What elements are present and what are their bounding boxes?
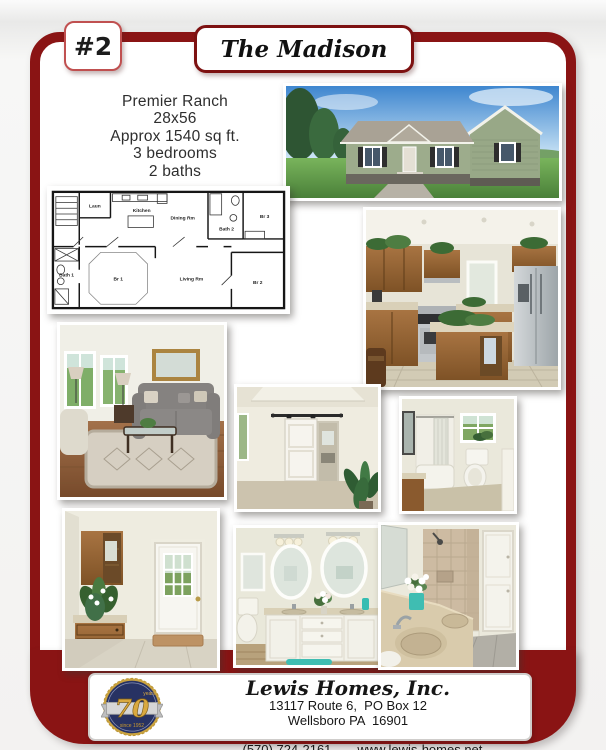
logo-number: 70 xyxy=(115,694,149,723)
hall-bathroom-photo xyxy=(399,396,517,514)
master-vanity-photo xyxy=(233,525,382,668)
room-label-bath2: Bath 2 xyxy=(219,226,234,232)
room-label-bath1: Bath 1 xyxy=(59,272,74,278)
address-line-1: 13117 Route 6, PO Box 12 xyxy=(176,699,520,714)
exterior-photo-image xyxy=(286,86,559,198)
model-number: #2 xyxy=(74,32,112,61)
address-line-2: Wellsboro PA 16901 xyxy=(176,714,520,729)
spec-line: Approx 1540 sq ft. xyxy=(70,128,280,145)
floor-plan-image: Laun Kitchen Dining Rm Bath 2 Br 3 Bath … xyxy=(50,189,287,311)
living-room-photo-image xyxy=(60,325,224,497)
toilet xyxy=(464,449,488,490)
room-label-living: Living Rm xyxy=(180,276,204,282)
spec-line: 2 baths xyxy=(70,163,280,180)
room-label-kitchen: Kitchen xyxy=(133,208,151,214)
armchair xyxy=(60,409,88,455)
entry-door xyxy=(151,539,205,637)
entry-photo xyxy=(62,508,220,671)
mirror-edge xyxy=(381,525,407,589)
logo-caption-top: years xyxy=(143,691,156,697)
footer-text: Lewis Homes, Inc. 13117 Route 6, PO Box … xyxy=(176,678,520,750)
company-name: Lewis Homes, Inc. xyxy=(176,678,520,699)
door-mat xyxy=(153,635,203,646)
exterior-photo xyxy=(283,83,562,201)
master-vanity-image xyxy=(236,528,379,665)
kitchen-photo xyxy=(363,207,561,390)
door-edge xyxy=(502,449,514,511)
bedroom-photo-image xyxy=(237,387,378,509)
refrigerator xyxy=(514,266,558,366)
website-link: www.lewis-homes.net xyxy=(357,742,482,750)
master-shower-photo xyxy=(378,522,519,670)
bathroom-doorway xyxy=(317,421,339,481)
spec-line: 28x56 xyxy=(70,110,280,127)
room-label-dining: Dining Rm xyxy=(170,216,194,222)
spec-line: 3 bedrooms xyxy=(70,145,280,162)
model-number-badge: #2 xyxy=(64,21,122,71)
linen-cabinet xyxy=(483,531,513,631)
room-label-br3: Br 3 xyxy=(260,214,270,220)
hall-bathroom-image xyxy=(402,399,514,511)
specs-block: Premier Ranch 28x56 Approx 1540 sq ft. 3… xyxy=(70,93,280,180)
floor-plan: Laun Kitchen Dining Rm Bath 2 Br 3 Bath … xyxy=(47,186,290,314)
footer-bar: 70 years since 1952 Lewis Homes, Inc. 13… xyxy=(88,673,532,741)
bedroom-barn-door-photo xyxy=(234,384,381,512)
room-label-br1: Br 1 xyxy=(114,276,124,282)
wall-mirror xyxy=(154,351,198,379)
flyer-page: #2 The Madison Premier Ranch 28x56 Appro… xyxy=(0,0,606,750)
anniversary-logo-image: 70 years since 1952 xyxy=(101,676,163,738)
model-title-box: The Madison xyxy=(194,25,414,73)
contact-line: (570) 724-2161www.lewis-homes.net xyxy=(176,728,520,750)
anniversary-logo: 70 years since 1952 xyxy=(101,676,163,738)
medicine-cabinet xyxy=(242,554,264,590)
master-shower-image xyxy=(381,525,516,667)
teal-rug xyxy=(286,659,332,665)
toilet xyxy=(237,598,258,642)
model-title: The Madison xyxy=(221,36,388,63)
spec-line: Premier Ranch xyxy=(70,93,280,110)
room-label-laundry: Laun xyxy=(89,203,101,209)
room-label-br2: Br 2 xyxy=(253,280,263,286)
logo-caption-bottom: since 1952 xyxy=(120,723,144,729)
entry-photo-image xyxy=(65,511,217,668)
kitchen-photo-image xyxy=(366,210,558,387)
area-rug xyxy=(86,431,216,487)
living-room-photo xyxy=(57,322,227,500)
phone-number: (570) 724-2161 xyxy=(243,742,332,750)
